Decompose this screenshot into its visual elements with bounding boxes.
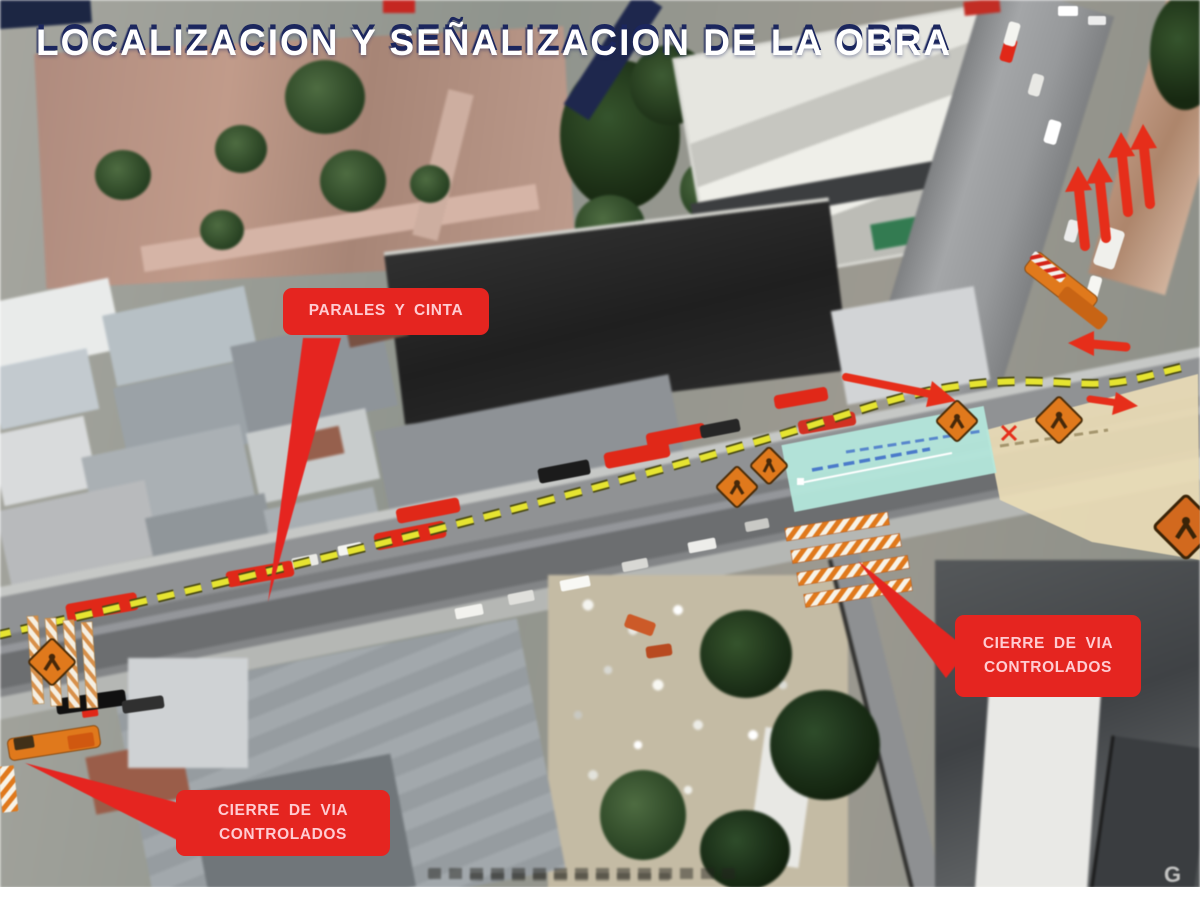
callout-line1: CIERRE DE VIA — [983, 632, 1113, 656]
annotation-overlay — [0, 0, 1200, 900]
traffic-arrow-left-icon — [1068, 331, 1126, 356]
callout-line2: CONTROLADOS — [984, 656, 1112, 680]
callout-label: PARALES Y CINTA — [309, 299, 464, 323]
page-title: LOCALIZACION Y SEÑALIZACION DE LA OBRA — [36, 22, 1166, 64]
construction-machine — [0, 725, 101, 813]
callout-line1: CIERRE DE VIA — [218, 799, 348, 823]
slide: LOCALIZACION Y SEÑALIZACION DE LA OBRA P… — [0, 0, 1200, 900]
vehicles — [55, 6, 1125, 715]
callout-parales-cinta: PARALES Y CINTA — [283, 288, 489, 335]
map-credit-glyph: G — [1164, 862, 1181, 888]
callout-cierre-via-right: CIERRE DE VIA CONTROLADOS — [955, 615, 1141, 697]
roadwork-sign-icon — [716, 466, 758, 508]
callout-pointer — [25, 763, 183, 843]
highlighted-vehicles — [65, 37, 1018, 718]
callout-cierre-via-left: CIERRE DE VIA CONTROLADOS — [176, 790, 390, 856]
roadwork-sign-icon — [750, 447, 788, 485]
bottom-margin — [0, 887, 1200, 900]
callout-pointer — [858, 561, 968, 678]
map-attribution — [470, 873, 670, 881]
callout-line2: CONTROLADOS — [219, 823, 347, 847]
